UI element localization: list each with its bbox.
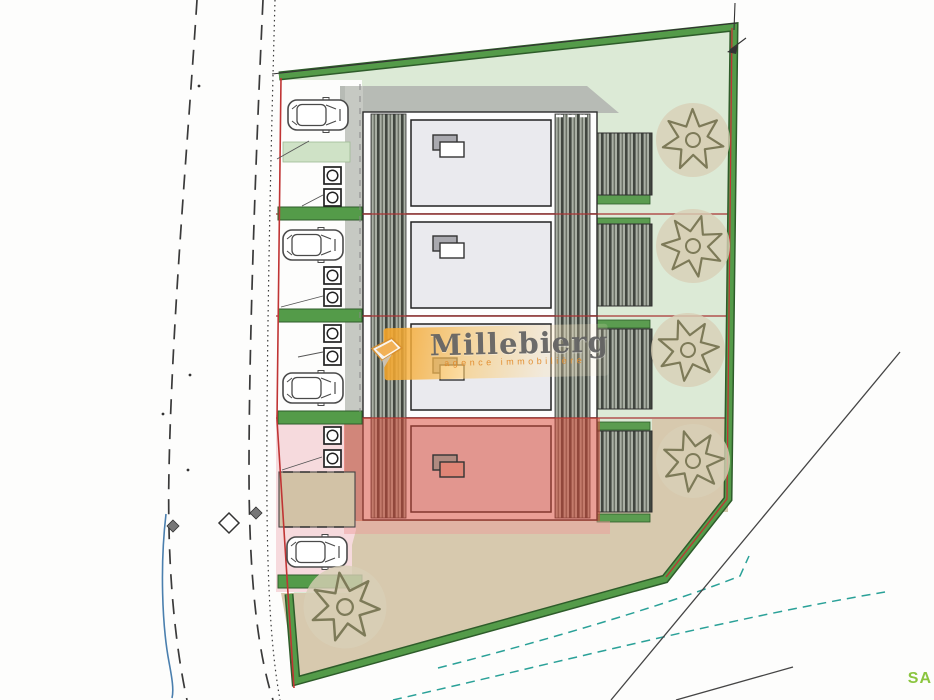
- utility-box-icon: [324, 450, 341, 467]
- terrace-unit3: [597, 329, 652, 409]
- unit4-pink-band: [344, 521, 610, 534]
- building-shadow: [340, 86, 619, 113]
- utility-box-icon: [324, 267, 341, 284]
- hedge-bar-2: [278, 309, 362, 322]
- terrace-unit4: [597, 431, 652, 512]
- garden-features: [597, 133, 652, 522]
- car-top-view-icon: [287, 535, 347, 570]
- roof-unit-2: [411, 222, 551, 308]
- site-plan-drawing: [0, 0, 934, 700]
- utility-box-icon: [324, 189, 341, 206]
- car-top-view-icon: [288, 98, 348, 133]
- terrace-unit1: [597, 133, 652, 195]
- survey-diamond-small-1: [250, 507, 262, 519]
- hedge-bar-1: [278, 207, 362, 220]
- utility-box-icon: [324, 167, 341, 184]
- utility-box-icon: [324, 289, 341, 306]
- road-edge-left: [169, 0, 197, 700]
- car-top-view-icon: [283, 228, 343, 263]
- terrace-unit2: [597, 224, 652, 306]
- roof-unit-1: [411, 120, 551, 206]
- planting-strip-unit1: [283, 142, 350, 162]
- site-plan-page: Millebierg agence immobilière SA: [0, 0, 934, 700]
- hedge-bar-3: [278, 411, 362, 424]
- diagonal-line-short: [676, 667, 793, 700]
- roof-unit-3: [411, 324, 551, 410]
- patio-unit4: [279, 472, 355, 527]
- utility-box-icon: [324, 427, 341, 444]
- road: [169, 0, 280, 700]
- utility-box-icon: [324, 325, 341, 342]
- car-top-view-icon: [283, 371, 343, 406]
- survey-diamond-open: [219, 513, 239, 533]
- corner-label: SA: [908, 670, 932, 688]
- stream-blue-line: [162, 514, 172, 698]
- unit4-highlight-overlay: [344, 418, 600, 521]
- utility-box-icon: [324, 348, 341, 365]
